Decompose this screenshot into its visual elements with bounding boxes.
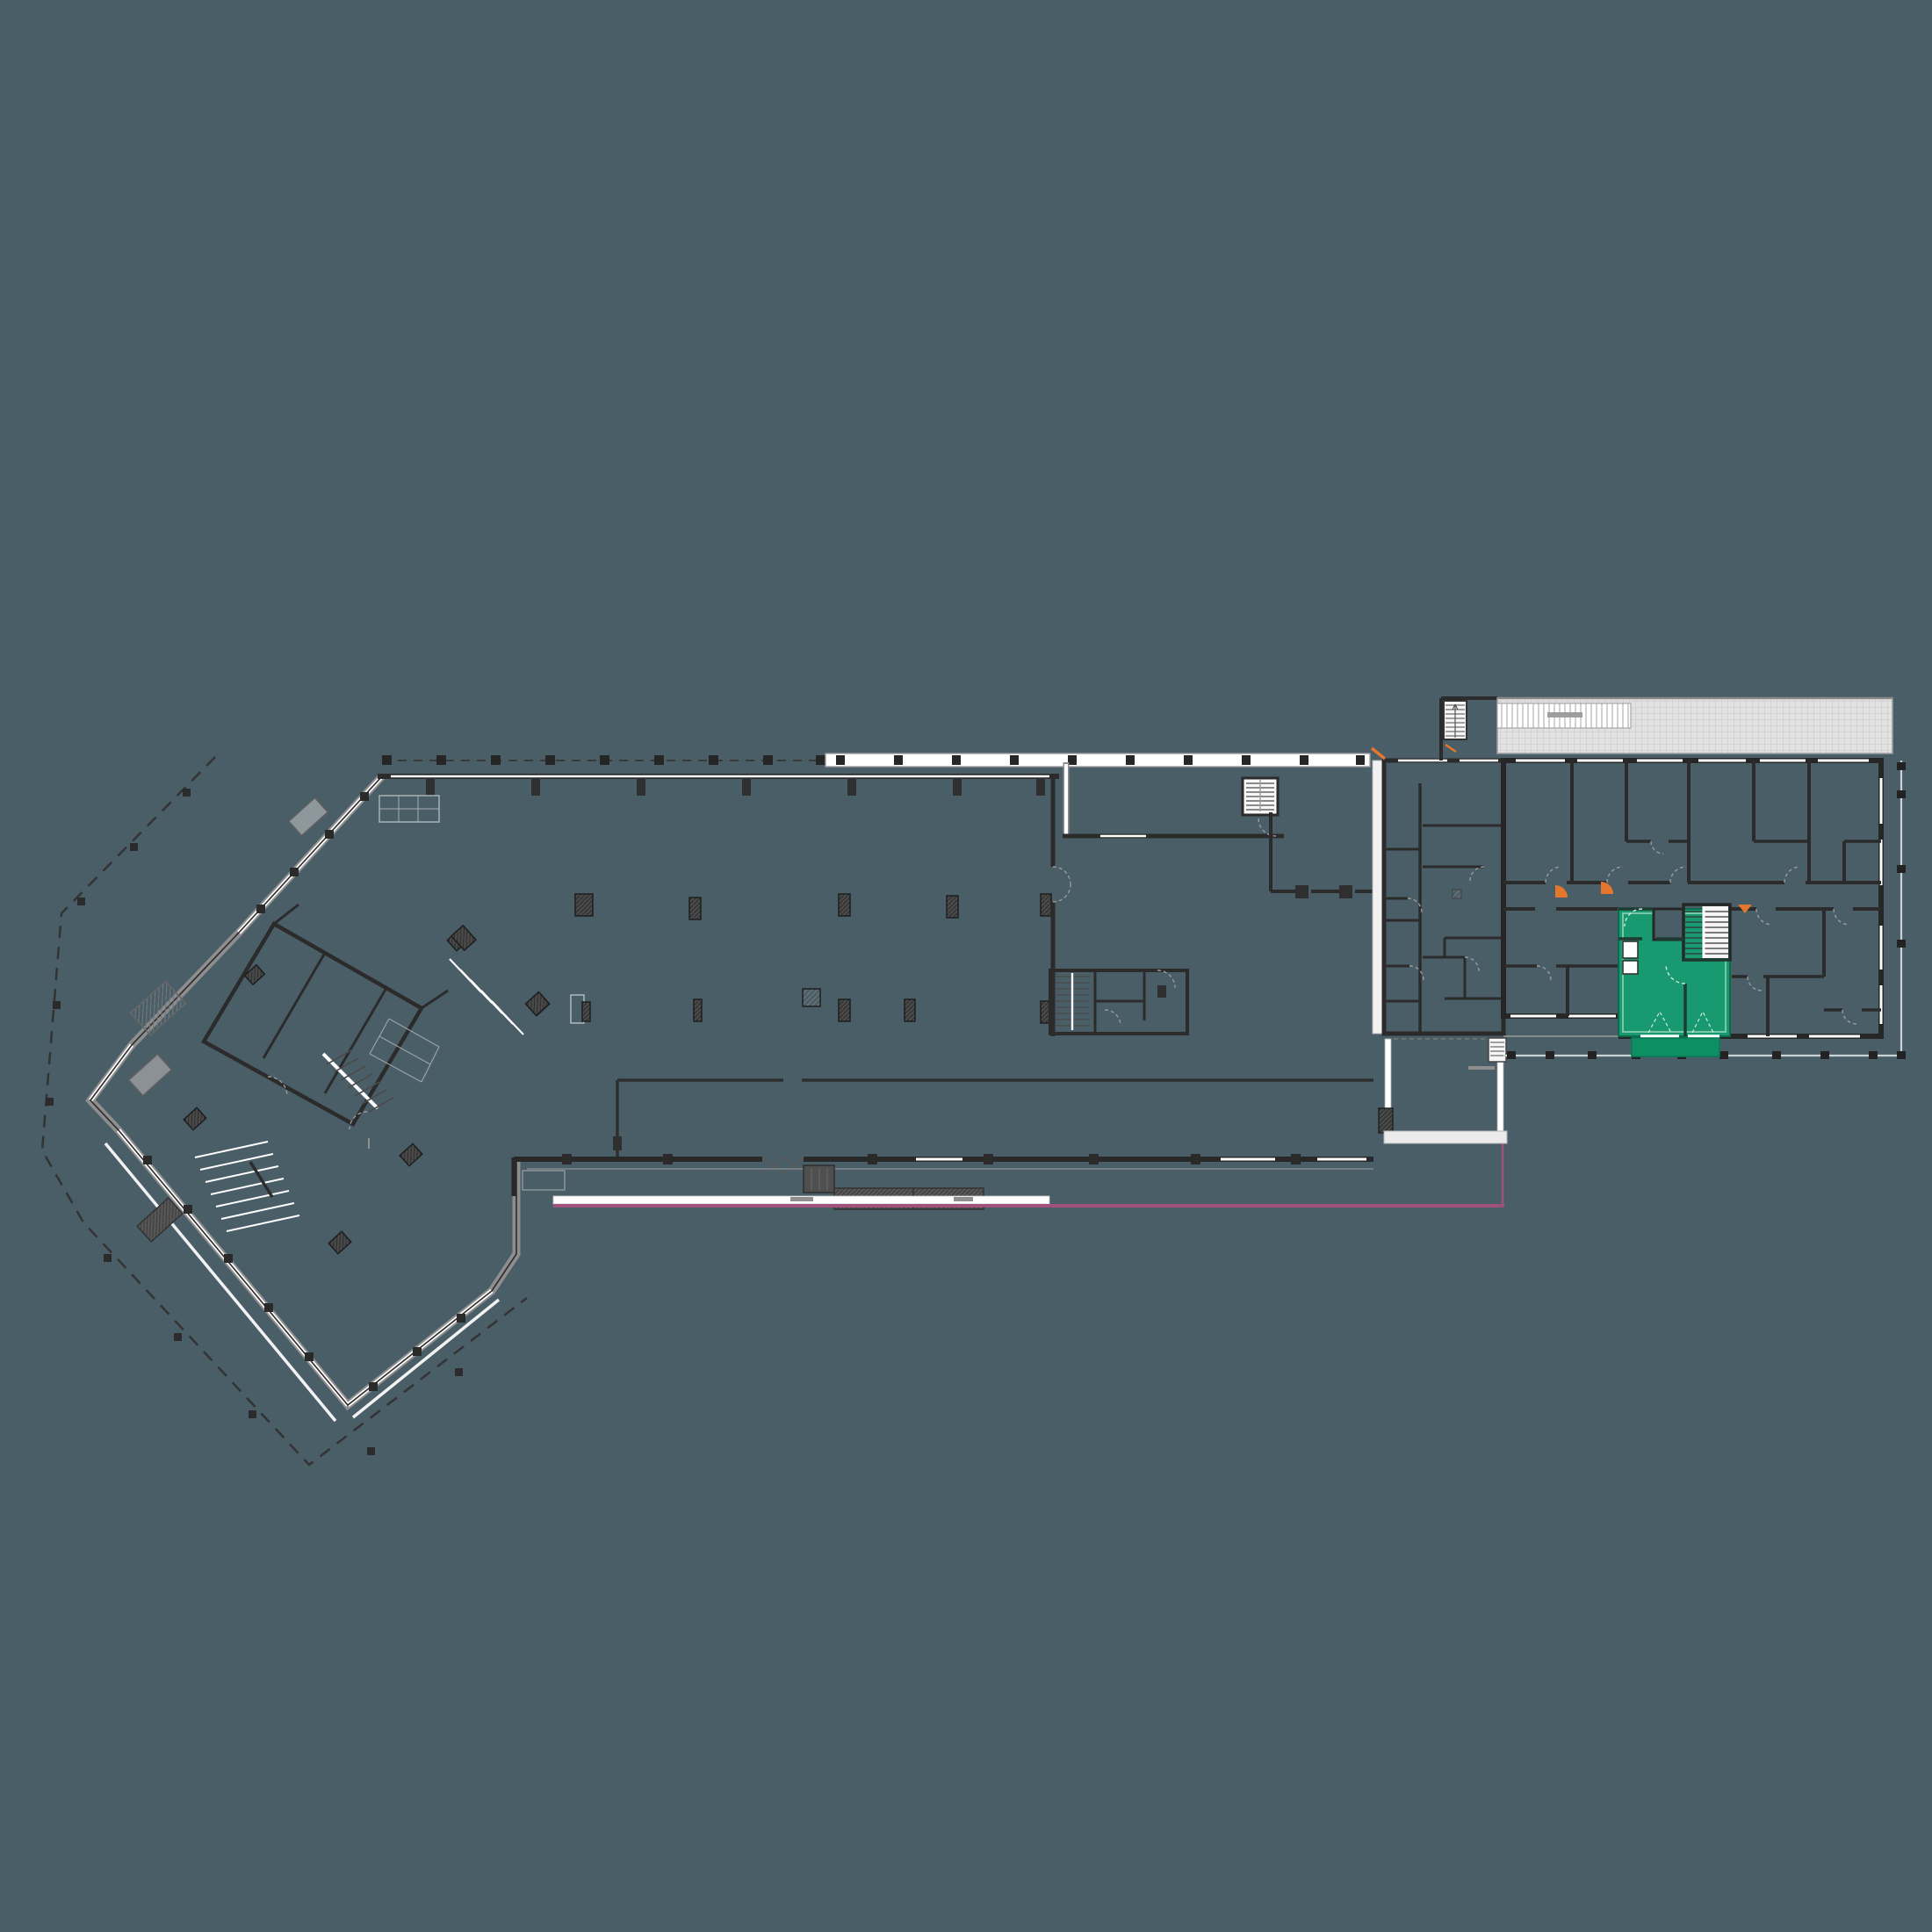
terrace-ramp: [1497, 703, 1631, 728]
unit-shaft-2: [1623, 961, 1638, 974]
porch-pier-base: [1379, 1108, 1393, 1133]
terrace-ramp-label-smudge: [1547, 712, 1582, 717]
floor-plan-svg: [0, 0, 1932, 1932]
roof-terrace: [1497, 698, 1892, 753]
connector-label-smudge: [1468, 1066, 1495, 1070]
promenade-label-smudge-1: [790, 1197, 813, 1201]
unit-closet: [1654, 909, 1683, 940]
floor-plan-page: [0, 0, 1932, 1932]
inner-wall-pier: [613, 1136, 622, 1150]
connector-column: [1453, 890, 1461, 898]
exterior-steps: [1489, 1038, 1506, 1062]
highlighted-unit[interactable]: [1618, 905, 1730, 1056]
connector-entry-stair: [1444, 701, 1467, 739]
unit-shaft-1: [1623, 941, 1638, 958]
hall-top-walkway: [825, 753, 1370, 767]
unit-balcony[interactable]: [1632, 1038, 1719, 1056]
promenade-label-smudge-2: [954, 1197, 973, 1201]
connector-walkway: [1384, 1131, 1507, 1143]
